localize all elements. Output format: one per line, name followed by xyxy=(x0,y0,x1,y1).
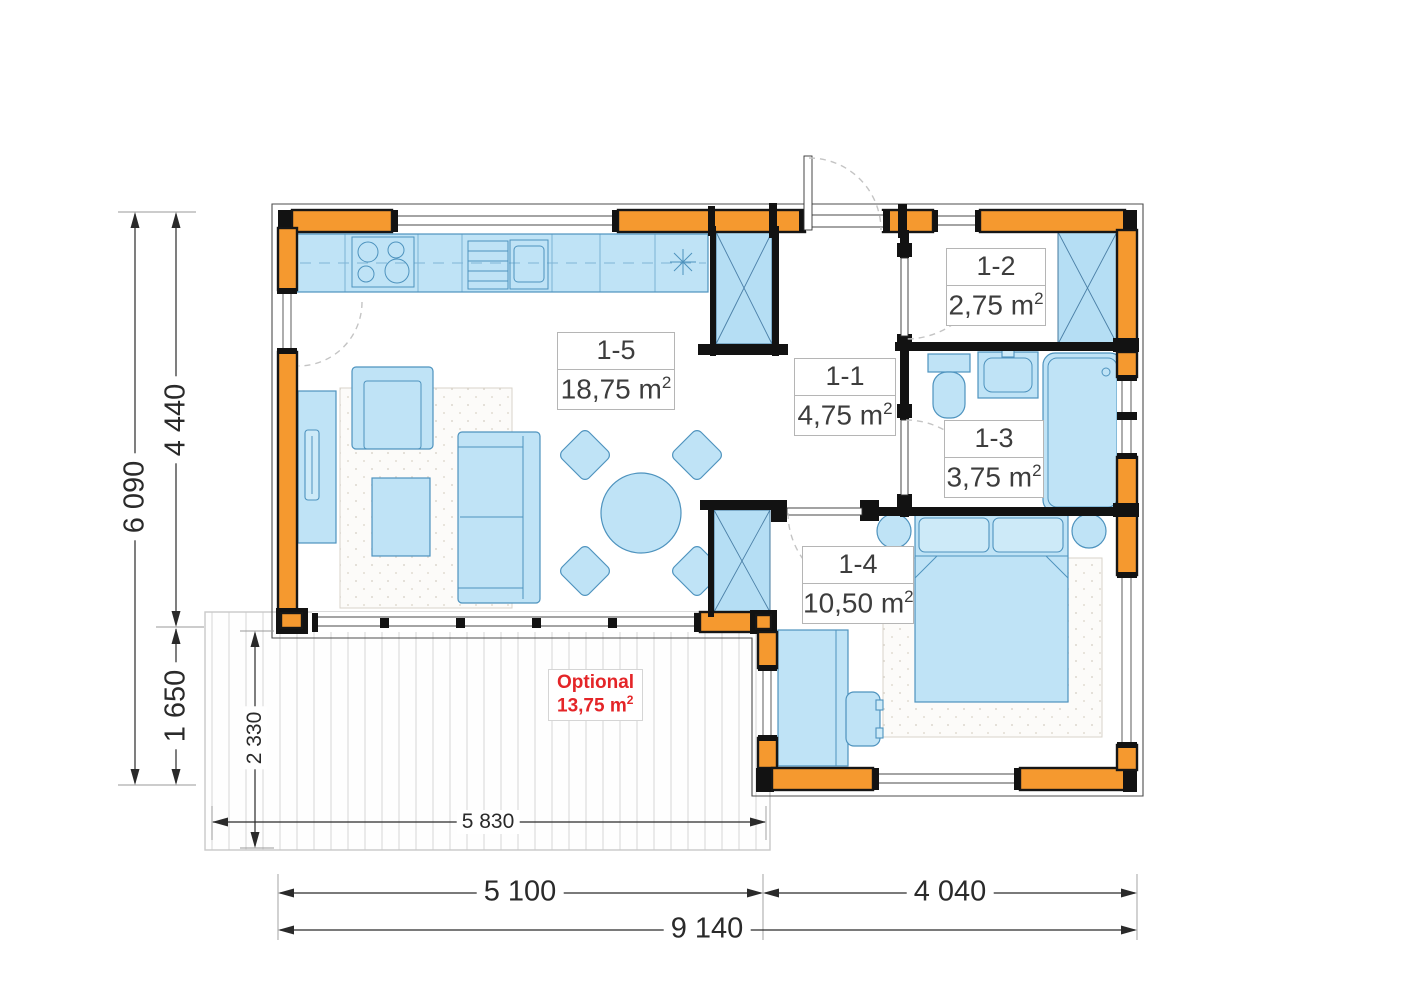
room-label-1-3: 1-3 3,75 m2 xyxy=(944,420,1044,498)
dim-terrace-depth: 2 330 xyxy=(243,707,267,770)
room-area-value: 3,75 m xyxy=(946,461,1032,492)
nightstand-left xyxy=(877,514,911,548)
room-area-value: 10,50 m xyxy=(803,587,904,618)
dim-living-width: 5 100 xyxy=(477,876,564,909)
room-area-sup: 2 xyxy=(662,373,671,392)
tv-bench xyxy=(298,391,336,543)
window-bedroom-bottom xyxy=(873,768,1020,790)
dim-total-height: 6 090 xyxy=(119,454,152,541)
room-area: 4,75 m2 xyxy=(795,396,895,435)
optional-terrace-label: Optional 13,75 m2 xyxy=(548,669,643,721)
room-id: 1-3 xyxy=(945,421,1043,458)
glazed-wall-living xyxy=(312,612,700,632)
dim-lower-height: 1 650 xyxy=(160,663,193,750)
room-area: 18,75 m2 xyxy=(558,370,674,409)
optional-area-sup: 2 xyxy=(627,693,634,707)
room-label-1-1: 1-1 4,75 m2 xyxy=(794,358,896,436)
room-area-value: 18,75 m xyxy=(561,373,662,404)
wardrobe-hall-top xyxy=(716,232,772,344)
floor-plan-page: 1-5 18,75 m2 1-1 4,75 m2 1-2 2,75 m2 1-3… xyxy=(0,0,1415,1000)
entrance-door xyxy=(804,156,883,231)
optional-area: 13,75 m2 xyxy=(557,694,634,717)
room-area: 10,50 m2 xyxy=(803,584,913,623)
bedroom-desk xyxy=(778,630,848,766)
wardrobe-room12 xyxy=(1058,232,1117,344)
toilet xyxy=(928,354,970,418)
window-room12 xyxy=(933,210,980,232)
kitchen-counter xyxy=(297,234,708,292)
desk-chair xyxy=(846,692,883,746)
armchair xyxy=(352,367,433,449)
bathtub xyxy=(1043,353,1122,512)
window-bathroom xyxy=(1117,375,1137,459)
dim-terrace-width: 5 830 xyxy=(457,810,520,834)
room-label-1-5: 1-5 18,75 m2 xyxy=(557,332,675,410)
nightstand-right xyxy=(1072,514,1106,548)
room-id: 1-5 xyxy=(558,333,674,370)
room-area-sup: 2 xyxy=(1032,461,1041,480)
room-id: 1-2 xyxy=(947,249,1045,286)
optional-area-value: 13,75 m xyxy=(557,695,627,716)
window-kitchen xyxy=(392,210,618,232)
window-bedroom-right xyxy=(1117,572,1137,748)
coffee-table xyxy=(372,478,430,556)
room-area-sup: 2 xyxy=(883,399,892,418)
room-label-1-4: 1-4 10,50 m2 xyxy=(802,546,914,624)
floor-plan-drawing xyxy=(0,0,1415,1000)
room-area: 2,75 m2 xyxy=(947,286,1045,325)
room-id: 1-4 xyxy=(803,547,913,584)
room-label-1-2: 1-2 2,75 m2 xyxy=(946,248,1046,326)
bathroom-sink xyxy=(978,348,1038,398)
room-area: 3,75 m2 xyxy=(945,458,1043,497)
dim-bedroom-width: 4 040 xyxy=(907,876,994,909)
double-bed xyxy=(915,514,1068,702)
window-bedroom-left xyxy=(758,665,777,741)
optional-title: Optional xyxy=(557,672,634,694)
wardrobe-living-corner xyxy=(714,510,770,612)
room-area-sup: 2 xyxy=(904,587,913,606)
room-id: 1-1 xyxy=(795,359,895,396)
dim-total-width: 9 140 xyxy=(664,913,751,946)
dim-upper-height: 4 440 xyxy=(160,377,193,464)
room-area-value: 2,75 m xyxy=(948,289,1034,320)
sofa xyxy=(458,432,540,603)
room-area-value: 4,75 m xyxy=(797,399,883,430)
room-area-sup: 2 xyxy=(1034,289,1043,308)
dining-set xyxy=(558,428,724,598)
